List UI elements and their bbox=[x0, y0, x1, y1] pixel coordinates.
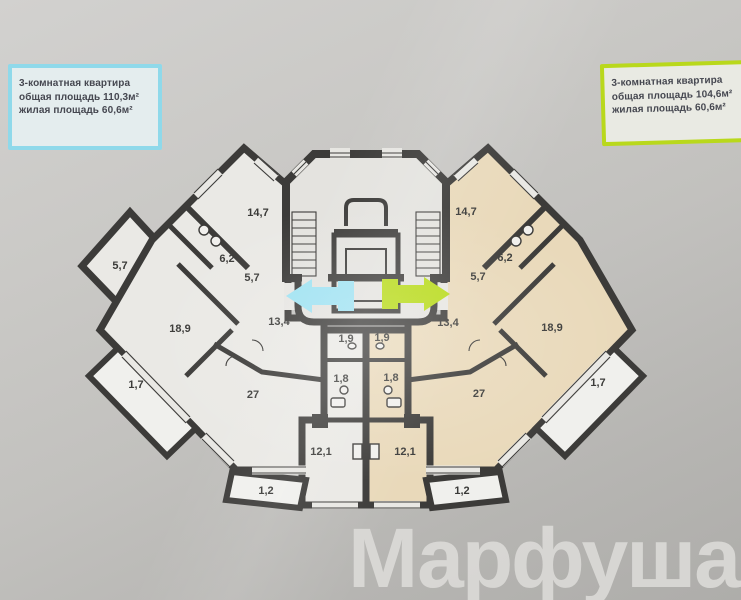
room-area-label: 5,7 bbox=[244, 272, 259, 284]
room-area-label: 6,2 bbox=[497, 252, 512, 264]
room-area-label: 1,9 bbox=[338, 333, 353, 345]
room-area-label: 12,1 bbox=[310, 446, 331, 458]
room-area-label: 1,2 bbox=[454, 485, 469, 497]
apartment-card-left: 3-комнатная квартира общая площадь 110,3… bbox=[8, 64, 162, 150]
room-area-label: 13,4 bbox=[268, 316, 289, 328]
card-title: 3-комнатная квартира bbox=[19, 77, 151, 91]
room-area-label: 14,7 bbox=[247, 207, 268, 219]
room-area-label: 12,1 bbox=[394, 446, 415, 458]
room-area-label: 1,7 bbox=[590, 377, 605, 389]
room-area-label: 13,4 bbox=[437, 317, 458, 329]
floorplan-photo: 14,7 6,2 5,7 5,7 18,9 13,4 1,7 27 1,9 1,… bbox=[0, 0, 741, 600]
room-area-label: 27 bbox=[247, 389, 259, 401]
room-area-label: 18,9 bbox=[169, 323, 190, 335]
room-area-label: 27 bbox=[473, 388, 485, 400]
room-area-label: 5,7 bbox=[470, 271, 485, 283]
room-area-label: 1,7 bbox=[128, 379, 143, 391]
room-area-label: 1,9 bbox=[374, 332, 389, 344]
room-area-label: 6,2 bbox=[219, 253, 234, 265]
apartment-card-right: 3-комнатная квартира общая площадь 104,6… bbox=[600, 60, 741, 146]
card-living-area: жилая площадь 60,6м² bbox=[612, 100, 741, 117]
room-area-label: 18,9 bbox=[541, 322, 562, 334]
room-area-label: 5,7 bbox=[112, 260, 127, 272]
card-total-area: общая площадь 110,3м² bbox=[19, 91, 151, 105]
room-area-label: 1,2 bbox=[258, 485, 273, 497]
room-area-label: 14,7 bbox=[455, 206, 476, 218]
card-living-area: жилая площадь 60,6м² bbox=[19, 104, 151, 118]
room-area-label: 1,8 bbox=[383, 372, 398, 384]
room-area-label: 1,8 bbox=[333, 373, 348, 385]
